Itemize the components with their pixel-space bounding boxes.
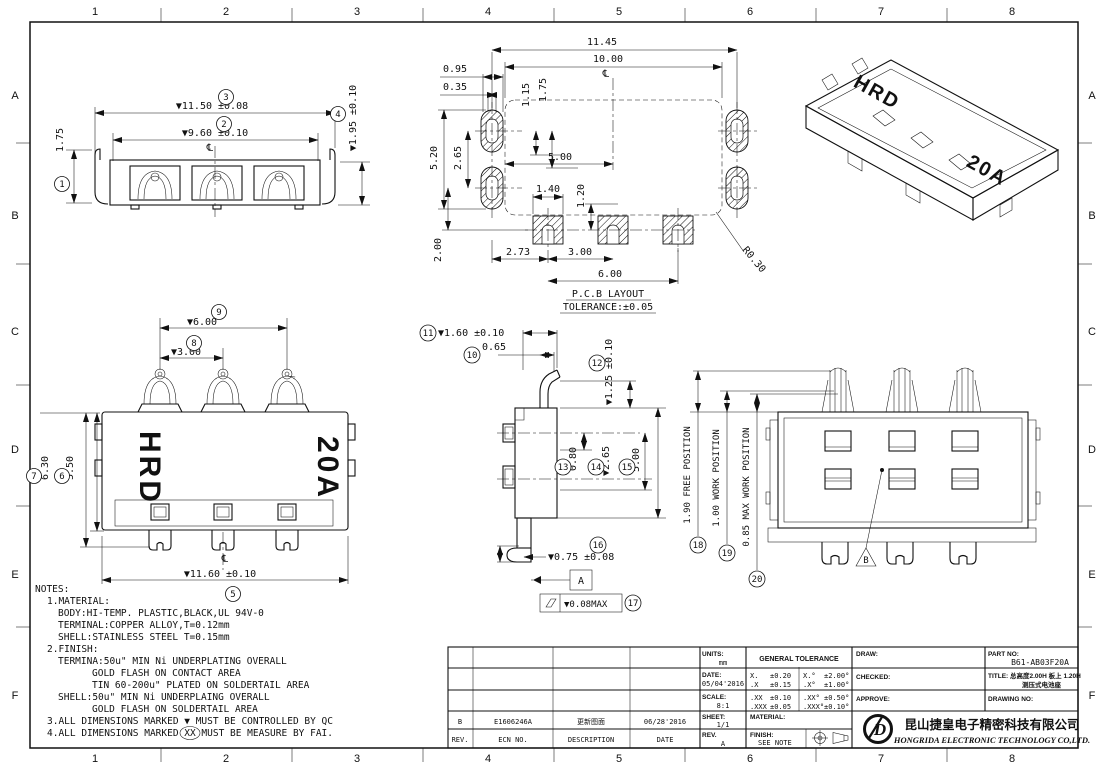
company-name-en: HONGRIDA ELECTRONIC TECHNOLOGY CO,LTD.	[893, 735, 1090, 745]
dim-pcb-2-00: 2.00	[433, 238, 444, 262]
dim-pcb-1-40: 1.40	[536, 184, 560, 195]
finish-label: FINISH:	[750, 732, 773, 739]
zone-row: B	[1088, 210, 1095, 222]
label-free-position: 1.90 FREE POSITION	[683, 426, 693, 524]
date-header: DATE	[657, 736, 674, 744]
note-line: SHELL:STAINLESS STEEL T=0.15mm	[58, 632, 230, 643]
zone-col: 6	[747, 6, 753, 18]
balloon-17: 17	[625, 595, 641, 611]
zone-row: C	[11, 326, 19, 338]
dim-side-1-25: ▼1.25 ±0.10	[604, 339, 615, 405]
material-label: MATERIAL:	[750, 714, 785, 721]
svg-text:9: 9	[216, 308, 221, 318]
svg-text:1: 1	[59, 180, 64, 190]
dim-top-6-00: ▼6.00	[187, 317, 217, 328]
svg-text:2: 2	[221, 120, 226, 130]
part-no-label: PART NO:	[988, 651, 1019, 658]
back-view-dimensions: 1.90 FREE POSITION 1.00 WORK POSITION 0.…	[683, 371, 884, 570]
front-view-contacts	[138, 171, 296, 199]
dim-pcb-corner-radius: R0.30	[740, 245, 768, 275]
zone-row: D	[11, 444, 19, 456]
zone-labels-left: A B C D E F	[11, 90, 19, 702]
company-logo-icon: D	[865, 716, 892, 743]
flatness-value: ▼0.08MAX	[564, 600, 608, 610]
centerline-symbol: ℄	[206, 143, 214, 154]
dim-pcb-1-20: 1.20	[576, 184, 587, 208]
dim-pcb-1-15: 1.15	[521, 83, 532, 107]
desc-value: 更新图面	[577, 717, 605, 726]
note-line: TERMINAL:COPPER ALLOY,T=0.12mm	[58, 620, 230, 631]
ecn-header: ECN NO.	[498, 736, 528, 744]
sheet-value: 1/1	[717, 721, 730, 729]
sheet-border: 1 2 3 4 5 6 7 8 1 2 3 4 5 6 7 8 A B C D …	[11, 6, 1096, 765]
svg-text:14: 14	[591, 463, 602, 473]
rev-header: REV.	[452, 736, 469, 744]
zone-col: 7	[878, 6, 884, 18]
note-line: GOLD FLASH ON CONTACT AREA	[92, 668, 241, 679]
draw-label: DRAW:	[856, 651, 878, 658]
balloon-13: 13	[555, 459, 571, 475]
zone-row: E	[1088, 569, 1095, 581]
notes-title: NOTES:	[35, 584, 69, 595]
svg-text:13: 13	[558, 463, 569, 473]
zone-col: 6	[747, 753, 753, 765]
zone-col: 2	[223, 6, 229, 18]
drawing-canvas: 1 2 3 4 5 6 7 8 1 2 3 4 5 6 7 8 A B C D …	[0, 0, 1108, 770]
engineering-drawing-sheet: 1 2 3 4 5 6 7 8 1 2 3 4 5 6 7 8 A B C D …	[0, 0, 1108, 770]
datum-b-flag: B	[856, 468, 884, 566]
zone-col: 8	[1009, 6, 1015, 18]
dim-pcb-2-65: 2.65	[453, 146, 464, 170]
note-line: 4.ALL DIMENSIONS MARKED XX MUST BE MEASU…	[47, 728, 333, 739]
svg-text:17: 17	[628, 599, 639, 609]
dim-pcb-2-73: 2.73	[506, 247, 530, 258]
datum-a-label: A	[578, 576, 584, 587]
svg-text:19: 19	[722, 549, 733, 559]
centerline-symbol: ℄	[221, 554, 229, 565]
tolerance-header: GENERAL TOLERANCE	[759, 656, 839, 663]
tol-deg-dx: .X°	[803, 681, 816, 689]
balloon-19: 19	[719, 545, 735, 561]
rev-current-value: A	[721, 740, 726, 748]
pcb-pads	[481, 110, 748, 244]
pcb-caption-line2: TOLERANCE:±0.05	[563, 302, 653, 313]
back-view: 1.90 FREE POSITION 1.00 WORK POSITION 0.…	[683, 368, 1040, 570]
label-work-position: 1.00 WORK POSITION	[712, 429, 722, 527]
zone-col: 3	[354, 6, 360, 18]
dim-pcb-total-width: 11.45	[587, 37, 617, 48]
svg-text:18: 18	[693, 541, 704, 551]
note-line: SHELL:50u" MIN Ni UNDERPLAING OVERALL	[58, 692, 270, 703]
iso-geometry	[806, 58, 1058, 220]
tol-deg-x: X.°	[803, 672, 816, 680]
notes-block: NOTES: 1.MATERIAL: BODY:HI-TEMP. PLASTIC…	[35, 584, 333, 740]
balloon-7: 7	[27, 469, 42, 484]
tol-deg-dxxx-val: ±0.10°	[824, 703, 849, 711]
balloon-1: 1	[55, 177, 70, 192]
ecn-value: E1606246A	[494, 718, 533, 726]
front-view-dimensions: ▼11.50 ±0.08 ▼9.60 ±0.10 1.75 ▼1.95 ±0.1…	[55, 85, 370, 205]
front-view: ▼11.50 ±0.08 ▼9.60 ±0.10 1.75 ▼1.95 ±0.1…	[55, 85, 370, 217]
isometric-view: HRD 20A	[806, 58, 1058, 220]
sheet-label: SHEET:	[702, 714, 725, 721]
top-view: HRD 20A ▼6.00 ▼3.00 6.30 5.50 ▼11.60 ±0.…	[40, 317, 355, 584]
zone-row: D	[1088, 444, 1096, 456]
datum-b-label: B	[863, 556, 868, 566]
zone-labels-bottom: 1 2 3 4 5 6 7 8	[92, 753, 1015, 765]
dim-side-0-65: 0.65	[482, 342, 506, 353]
zone-col: 1	[92, 753, 98, 765]
zone-col: 7	[878, 753, 884, 765]
dim-front-overall-width: ▼11.50 ±0.08	[176, 101, 248, 112]
units-label: UNITS:	[702, 651, 724, 658]
dim-front-height: 1.75	[55, 128, 66, 152]
top-view-dimensions: ▼6.00 ▼3.00 6.30 5.50 ▼11.60 ±0.10 ℄	[40, 317, 348, 584]
zone-col: 1	[92, 6, 98, 18]
date-value: 06/28'2016	[644, 718, 686, 726]
svg-text:6: 6	[59, 472, 64, 482]
title-label: TITLE:	[988, 673, 1008, 680]
svg-text:4: 4	[335, 110, 340, 120]
tol-dx-val: ±0.15	[770, 681, 791, 689]
balloon-6: 6	[55, 469, 70, 484]
units-value: mm	[719, 659, 727, 667]
desc-header: DESCRIPTION	[568, 736, 614, 744]
note-line: 1.MATERIAL:	[47, 596, 110, 607]
svg-text:16: 16	[593, 541, 604, 551]
label-max-work-position: 0.85 MAX WORK POSITION	[742, 427, 752, 546]
tol-dxxx-val: ±0.05	[770, 703, 791, 711]
balloon-5: 5	[226, 587, 241, 602]
tol-dxx-val: ±0.10	[770, 694, 791, 702]
balloon-16: 16	[590, 537, 606, 553]
note-line: BODY:HI-TEMP. PLASTIC,BLACK,UL 94V-0	[58, 608, 264, 619]
zone-col: 4	[485, 6, 491, 18]
title-line2: 测压式电池座	[1022, 680, 1062, 689]
zone-col: 5	[616, 753, 622, 765]
finish-value: SEE NOTE	[758, 739, 792, 747]
dim-pcb-5-00: 5.00	[548, 152, 572, 163]
tol-deg-dxx-val: ±0.50°	[824, 694, 849, 702]
svg-text:3: 3	[223, 93, 228, 103]
balloon-8: 8	[187, 336, 202, 351]
note-line: TERMINA:50u" MIN Ni UNDERPLATING OVERALL	[58, 656, 287, 667]
tol-x: X.	[750, 672, 758, 680]
tol-dx: .X	[750, 681, 759, 689]
tol-dxxx: .XXX	[750, 703, 768, 711]
iso-brand-marking: HRD	[850, 71, 904, 114]
dim-pcb-pad-span: 10.00	[593, 54, 623, 65]
zone-col: 5	[616, 6, 622, 18]
scale-label: SCALE:	[702, 694, 726, 701]
zone-col: 3	[354, 753, 360, 765]
zone-row: F	[1089, 690, 1096, 702]
tol-deg-dxxx: .XXX°	[803, 703, 824, 711]
dim-pcb-5-20: 5.20	[429, 146, 440, 170]
zone-row: E	[11, 569, 18, 581]
centerline-symbol: ℄	[602, 69, 610, 80]
dim-pcb-1-75: 1.75	[538, 78, 549, 102]
dim-side-0-75: ▼0.75 ±0.08	[548, 552, 614, 563]
dim-pcb-6-00: 6.00	[598, 269, 622, 280]
rev-value: B	[458, 718, 462, 726]
top-view-brand-marking: HRD	[133, 431, 166, 505]
title-line1: 总高度2.00H 板上 1.20H	[1010, 671, 1081, 680]
zone-row: B	[11, 210, 18, 222]
back-view-geometry	[766, 412, 1040, 564]
balloon-callouts: 1 2 3 4 5 6 7 8 9 10 11 12 13 14 15 16 1…	[27, 90, 766, 612]
balloon-12: 12	[589, 355, 605, 371]
balloon-11: 11	[420, 325, 436, 341]
iso-rating-marking: 20A	[963, 151, 1011, 191]
zone-col: 8	[1009, 753, 1015, 765]
zone-row: A	[11, 90, 19, 102]
balloon-9: 9	[212, 305, 227, 320]
balloon-3: 3	[219, 90, 234, 105]
note-line: GOLD FLASH ON SOLDERTAIL AREA	[92, 704, 258, 715]
zone-labels-top: 1 2 3 4 5 6 7 8	[92, 6, 1015, 18]
dim-pcb-0-95: 0.95	[443, 64, 467, 75]
flatness-control-frame: ▼0.08MAX	[540, 594, 622, 612]
rev-label: REV.	[702, 732, 717, 739]
pcb-caption-line1: P.C.B LAYOUT	[572, 289, 644, 300]
back-view-contacts	[822, 368, 981, 412]
side-view-geometry	[503, 370, 560, 562]
tol-deg-dxx: .XX°	[803, 694, 820, 702]
projection-symbol-icon	[812, 730, 848, 746]
tol-dxx: .XX	[750, 694, 763, 702]
approve-label: APPROVE:	[856, 696, 890, 703]
zone-row: A	[1088, 90, 1096, 102]
note-line: 2.FINISH:	[47, 644, 98, 655]
balloon-18: 18	[690, 537, 706, 553]
dim-pcb-3-00: 3.00	[568, 247, 592, 258]
pcb-outline	[505, 100, 722, 215]
balloon-10: 10	[464, 347, 480, 363]
balloon-20: 20	[749, 571, 765, 587]
dim-top-11-60: ▼11.60 ±0.10	[184, 569, 256, 580]
scale-value: 8:1	[717, 702, 730, 710]
zone-row: C	[1088, 326, 1096, 338]
dim-front-inner-width: ▼9.60 ±0.10	[182, 128, 248, 139]
svg-text:7: 7	[31, 472, 36, 482]
note-line: 3.ALL DIMENSIONS MARKED ▼ MUST BE CONTRO…	[47, 716, 333, 727]
zone-col: 2	[223, 753, 229, 765]
dim-pcb-0-35: 0.35	[443, 82, 467, 93]
pcb-dimensions: 11.45 10.00 0.95 0.35 1.15 1.75 5.20 2.6…	[429, 37, 767, 313]
balloon-15: 15	[619, 459, 635, 475]
svg-text:10: 10	[467, 351, 478, 361]
note-line: TIN 60-200u" PLATED ON SOLDERTAIL AREA	[92, 680, 310, 691]
date-label: DATE:	[702, 672, 721, 679]
tol-deg-dx-val: ±1.00°	[824, 681, 849, 689]
zone-col: 4	[485, 753, 491, 765]
svg-text:8: 8	[191, 339, 196, 349]
balloon-4: 4	[331, 107, 346, 122]
svg-text:15: 15	[622, 463, 633, 473]
date-created-value: 05/04'2016	[702, 680, 744, 688]
svg-text:20: 20	[752, 575, 763, 585]
drawing-no-label: DRAWING NO:	[988, 696, 1033, 703]
datum-a-flag: A	[533, 570, 592, 590]
svg-text:5: 5	[230, 590, 235, 600]
zone-row: F	[12, 690, 19, 702]
balloon-2: 2	[217, 117, 232, 132]
dim-front-shell-height: ▼1.95 ±0.10	[348, 85, 359, 151]
checked-label: CHECKED:	[856, 674, 890, 681]
tol-x-val: ±0.20	[770, 672, 791, 680]
pcb-layout-view: 11.45 10.00 0.95 0.35 1.15 1.75 5.20 2.6…	[429, 37, 767, 313]
title-block: B E1606246A 更新图面 06/28'2016 REV. ECN NO.…	[448, 647, 1090, 748]
tol-deg-x-val: ±2.00°	[824, 672, 849, 680]
zone-labels-right: A B C D E F	[1088, 90, 1096, 702]
svg-text:12: 12	[592, 359, 603, 369]
balloon-14: 14	[588, 459, 604, 475]
top-view-rating-marking: 20A	[311, 436, 344, 500]
company-name-cn: 昆山捷皇电子精密科技有限公司	[904, 717, 1079, 732]
dim-side-1-60: ▼1.60 ±0.10	[438, 328, 504, 339]
part-no-value: B61-AB03F20A	[1011, 658, 1069, 667]
logo-letter: D	[873, 720, 886, 739]
svg-text:11: 11	[423, 329, 434, 339]
